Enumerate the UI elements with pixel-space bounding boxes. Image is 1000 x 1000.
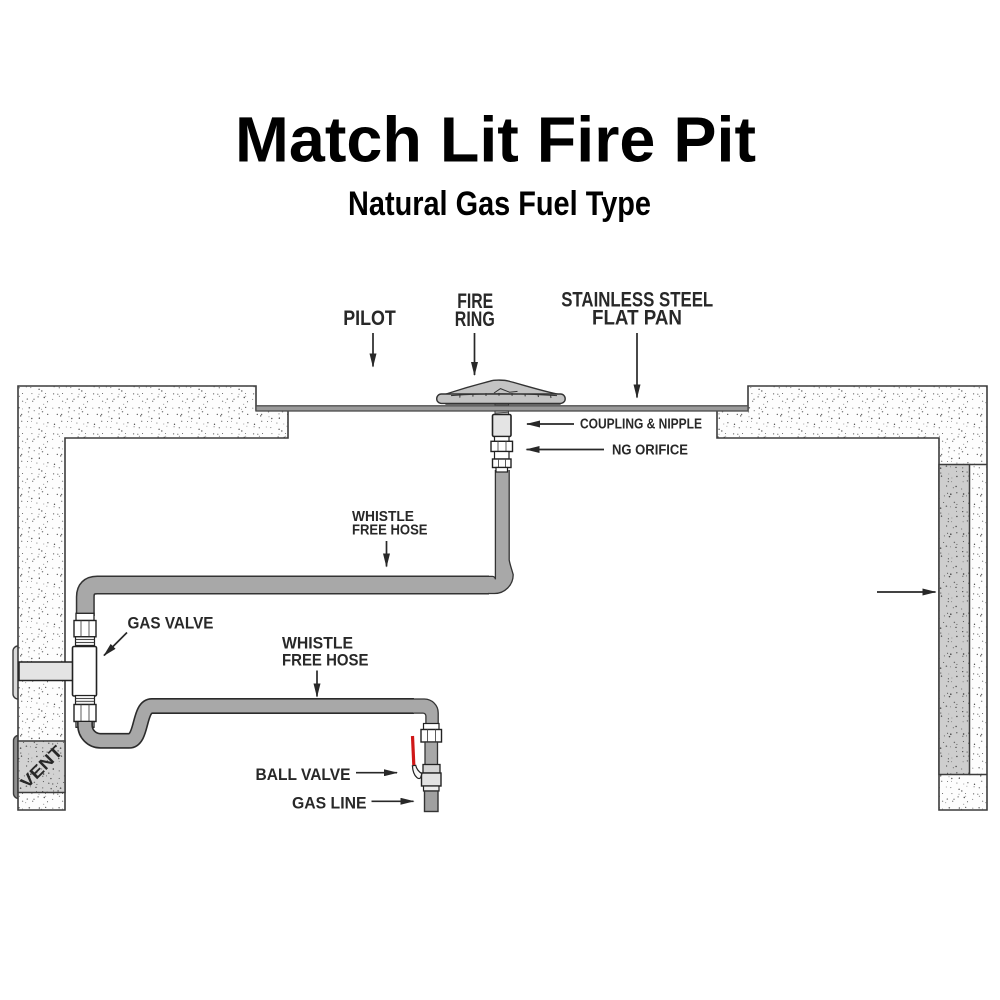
svg-text:FLAT PAN: FLAT PAN [592, 307, 682, 330]
svg-text:GAS VALVE: GAS VALVE [128, 614, 214, 633]
svg-text:COUPLING & NIPPLE: COUPLING & NIPPLE [580, 417, 702, 433]
svg-text:FREE HOSE: FREE HOSE [282, 651, 369, 670]
svg-text:GAS LINE: GAS LINE [292, 794, 367, 813]
svg-text:FREE HOSE: FREE HOSE [352, 522, 428, 539]
svg-text:RING: RING [455, 308, 495, 331]
svg-text:PILOT: PILOT [343, 307, 396, 330]
svg-text:Match Lit Fire Pit: Match Lit Fire Pit [235, 104, 756, 176]
svg-text:BALL VALVE: BALL VALVE [256, 765, 351, 784]
svg-text:NG ORIFICE: NG ORIFICE [612, 442, 688, 458]
svg-text:Natural Gas Fuel Type: Natural Gas Fuel Type [348, 185, 651, 223]
